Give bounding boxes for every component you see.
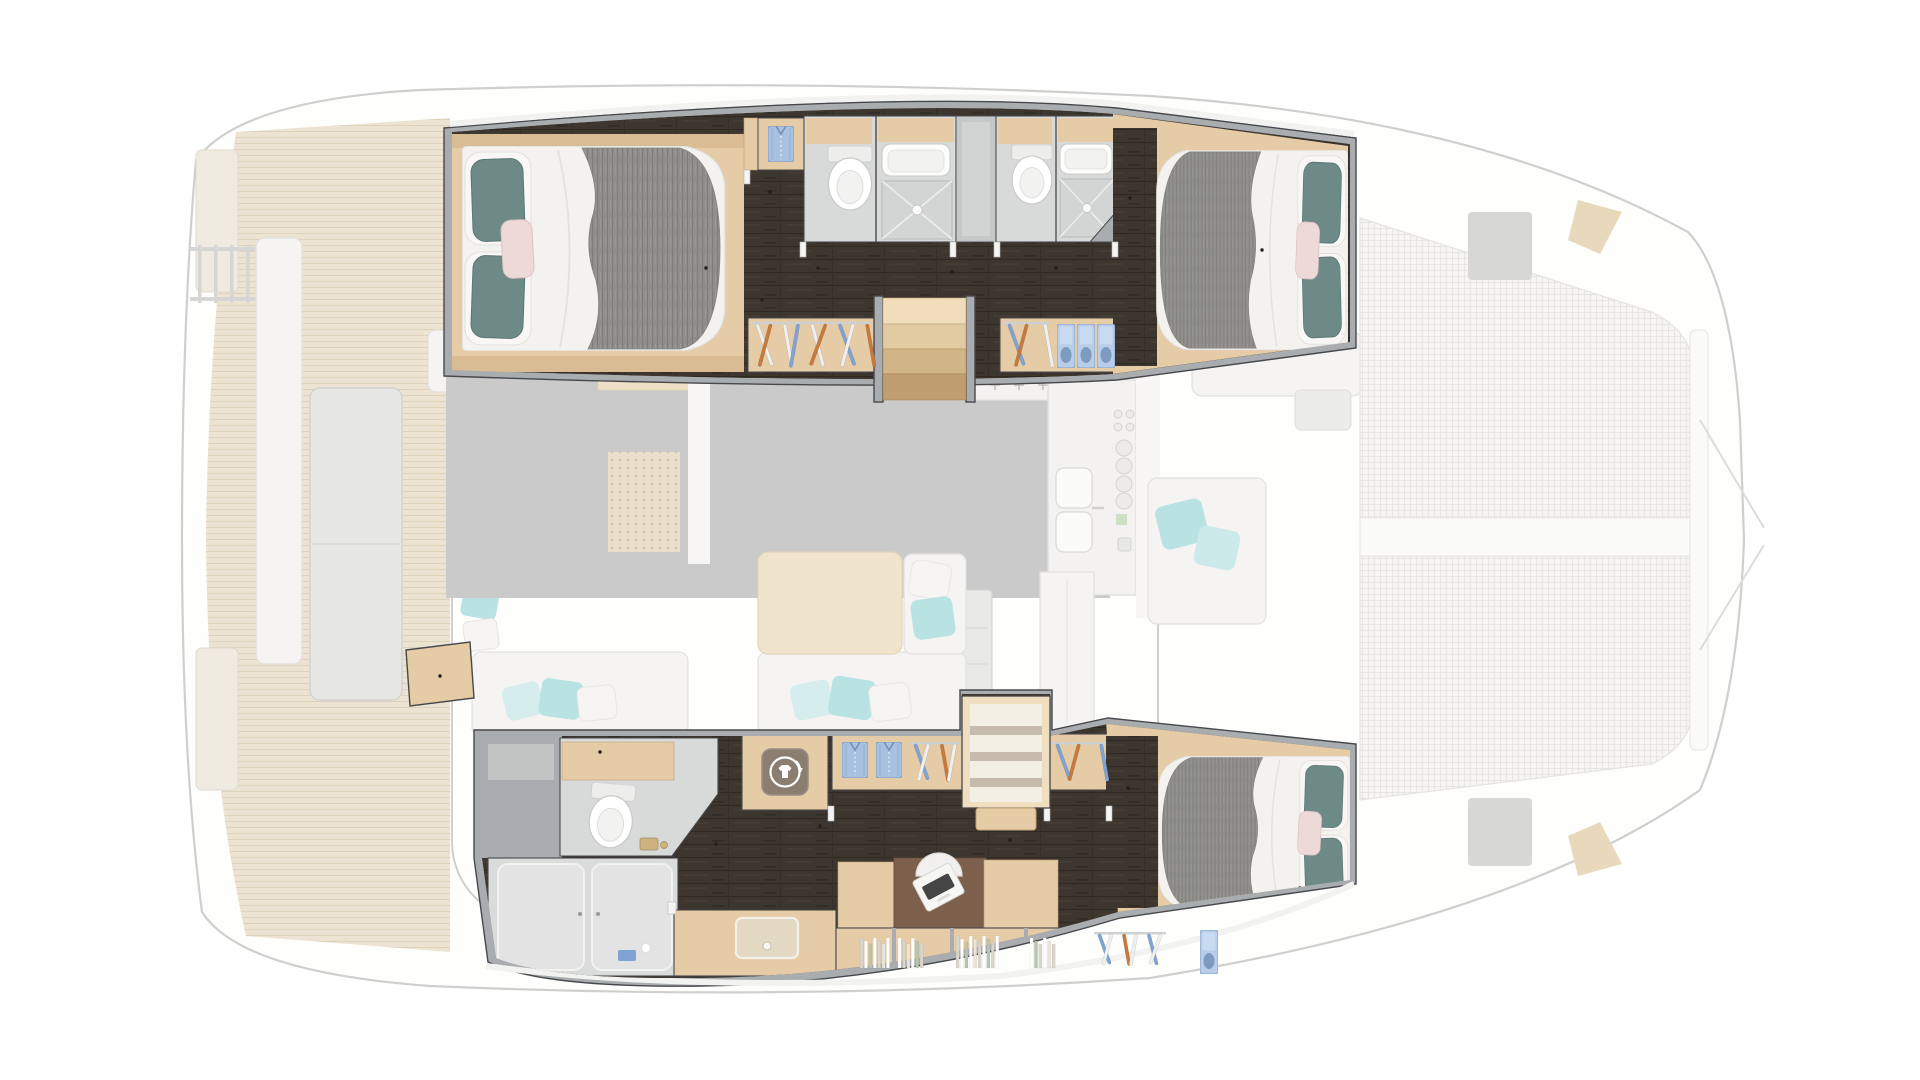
port-stairs xyxy=(874,296,975,402)
book-spine-icon xyxy=(911,938,914,968)
port-bathroom-fwd xyxy=(996,116,1116,242)
cockpit-bench xyxy=(256,238,302,664)
floorplan-stage xyxy=(0,0,1920,1080)
port-fwd-cabin xyxy=(1113,114,1348,374)
dining-table xyxy=(758,552,902,654)
book-spine-icon xyxy=(1034,941,1037,968)
owner-bathroom xyxy=(482,736,718,858)
vanity xyxy=(674,910,836,976)
book-spine-icon xyxy=(1039,944,1042,968)
book-spine-icon xyxy=(886,938,889,968)
book-spine-icon xyxy=(996,936,999,968)
office-desk xyxy=(838,853,1058,938)
port-aft-cabin xyxy=(452,134,744,372)
book-spine-icon xyxy=(969,936,972,968)
toilet-icon xyxy=(828,146,872,210)
book-spine-icon xyxy=(956,936,959,968)
book-spine-icon xyxy=(978,942,981,968)
tilted-locker xyxy=(406,642,474,706)
owner-cabin xyxy=(1106,720,1350,914)
port-hull xyxy=(444,97,1356,402)
toilet-icon xyxy=(1012,145,1052,204)
port-bathroom-aft xyxy=(804,116,956,242)
book-spine-icon xyxy=(920,944,923,968)
book-spine-icon xyxy=(860,938,863,968)
book-spine-icon xyxy=(864,941,867,968)
book-spine-icon xyxy=(898,938,901,968)
book-spine-icon xyxy=(974,939,977,968)
book-spine-icon xyxy=(873,938,876,968)
wardrobe-rod xyxy=(910,742,960,744)
book-spine-icon xyxy=(878,941,881,968)
folded-clothes-cubby-icon xyxy=(1057,324,1075,368)
double-bed xyxy=(1157,150,1348,350)
book-spine-icon xyxy=(869,944,872,968)
catamaran-floorplan xyxy=(0,0,1920,1080)
side-locker xyxy=(956,116,996,242)
folded-clothes-cubby-icon xyxy=(1200,930,1218,974)
book-spine-icon xyxy=(1048,941,1051,968)
book-spine-icon xyxy=(907,944,910,968)
book-spine-icon xyxy=(1030,938,1033,968)
washing-machine-icon xyxy=(762,749,808,795)
folded-shirt-icon xyxy=(842,742,868,778)
folded-shirt-icon xyxy=(876,742,902,778)
double-bed xyxy=(462,146,725,351)
book-spine-icon xyxy=(982,936,985,968)
shower-room xyxy=(488,858,678,976)
folded-clothes-cubby-icon xyxy=(1097,324,1115,368)
folded-shirt-icon xyxy=(768,126,794,162)
book-spine-icon xyxy=(1043,938,1046,968)
book-spine-icon xyxy=(882,944,885,968)
book-spine-icon xyxy=(916,941,919,968)
folded-clothes-cubby-icon xyxy=(1077,324,1095,368)
book-spine-icon xyxy=(987,939,990,968)
book-spine-icon xyxy=(965,942,968,968)
wardrobe-rod xyxy=(1094,932,1166,934)
book-spine-icon xyxy=(1052,944,1055,968)
book-spine-icon xyxy=(902,941,905,968)
book-spine-icon xyxy=(991,942,994,968)
shower-icon xyxy=(882,181,952,239)
book-spine-icon xyxy=(960,939,963,968)
